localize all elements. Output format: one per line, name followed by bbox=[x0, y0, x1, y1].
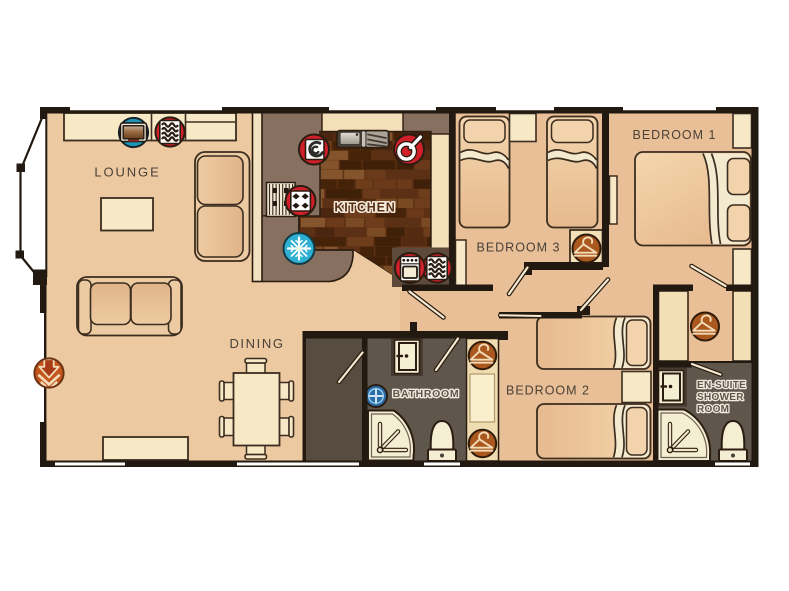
svg-text:DINING: DINING bbox=[229, 336, 284, 351]
svg-text:KITCHEN: KITCHEN bbox=[334, 201, 395, 215]
svg-text:BATHROOM: BATHROOM bbox=[393, 388, 460, 400]
svg-text:EN-SUITE: EN-SUITE bbox=[697, 380, 746, 391]
svg-text:ROOM: ROOM bbox=[697, 404, 729, 415]
svg-text:SHOWER: SHOWER bbox=[697, 392, 744, 403]
svg-text:LOUNGE: LOUNGE bbox=[94, 165, 160, 180]
svg-text:BEDROOM 3: BEDROOM 3 bbox=[476, 241, 560, 255]
svg-text:BEDROOM 2: BEDROOM 2 bbox=[506, 384, 590, 398]
svg-text:BEDROOM 1: BEDROOM 1 bbox=[632, 128, 716, 142]
